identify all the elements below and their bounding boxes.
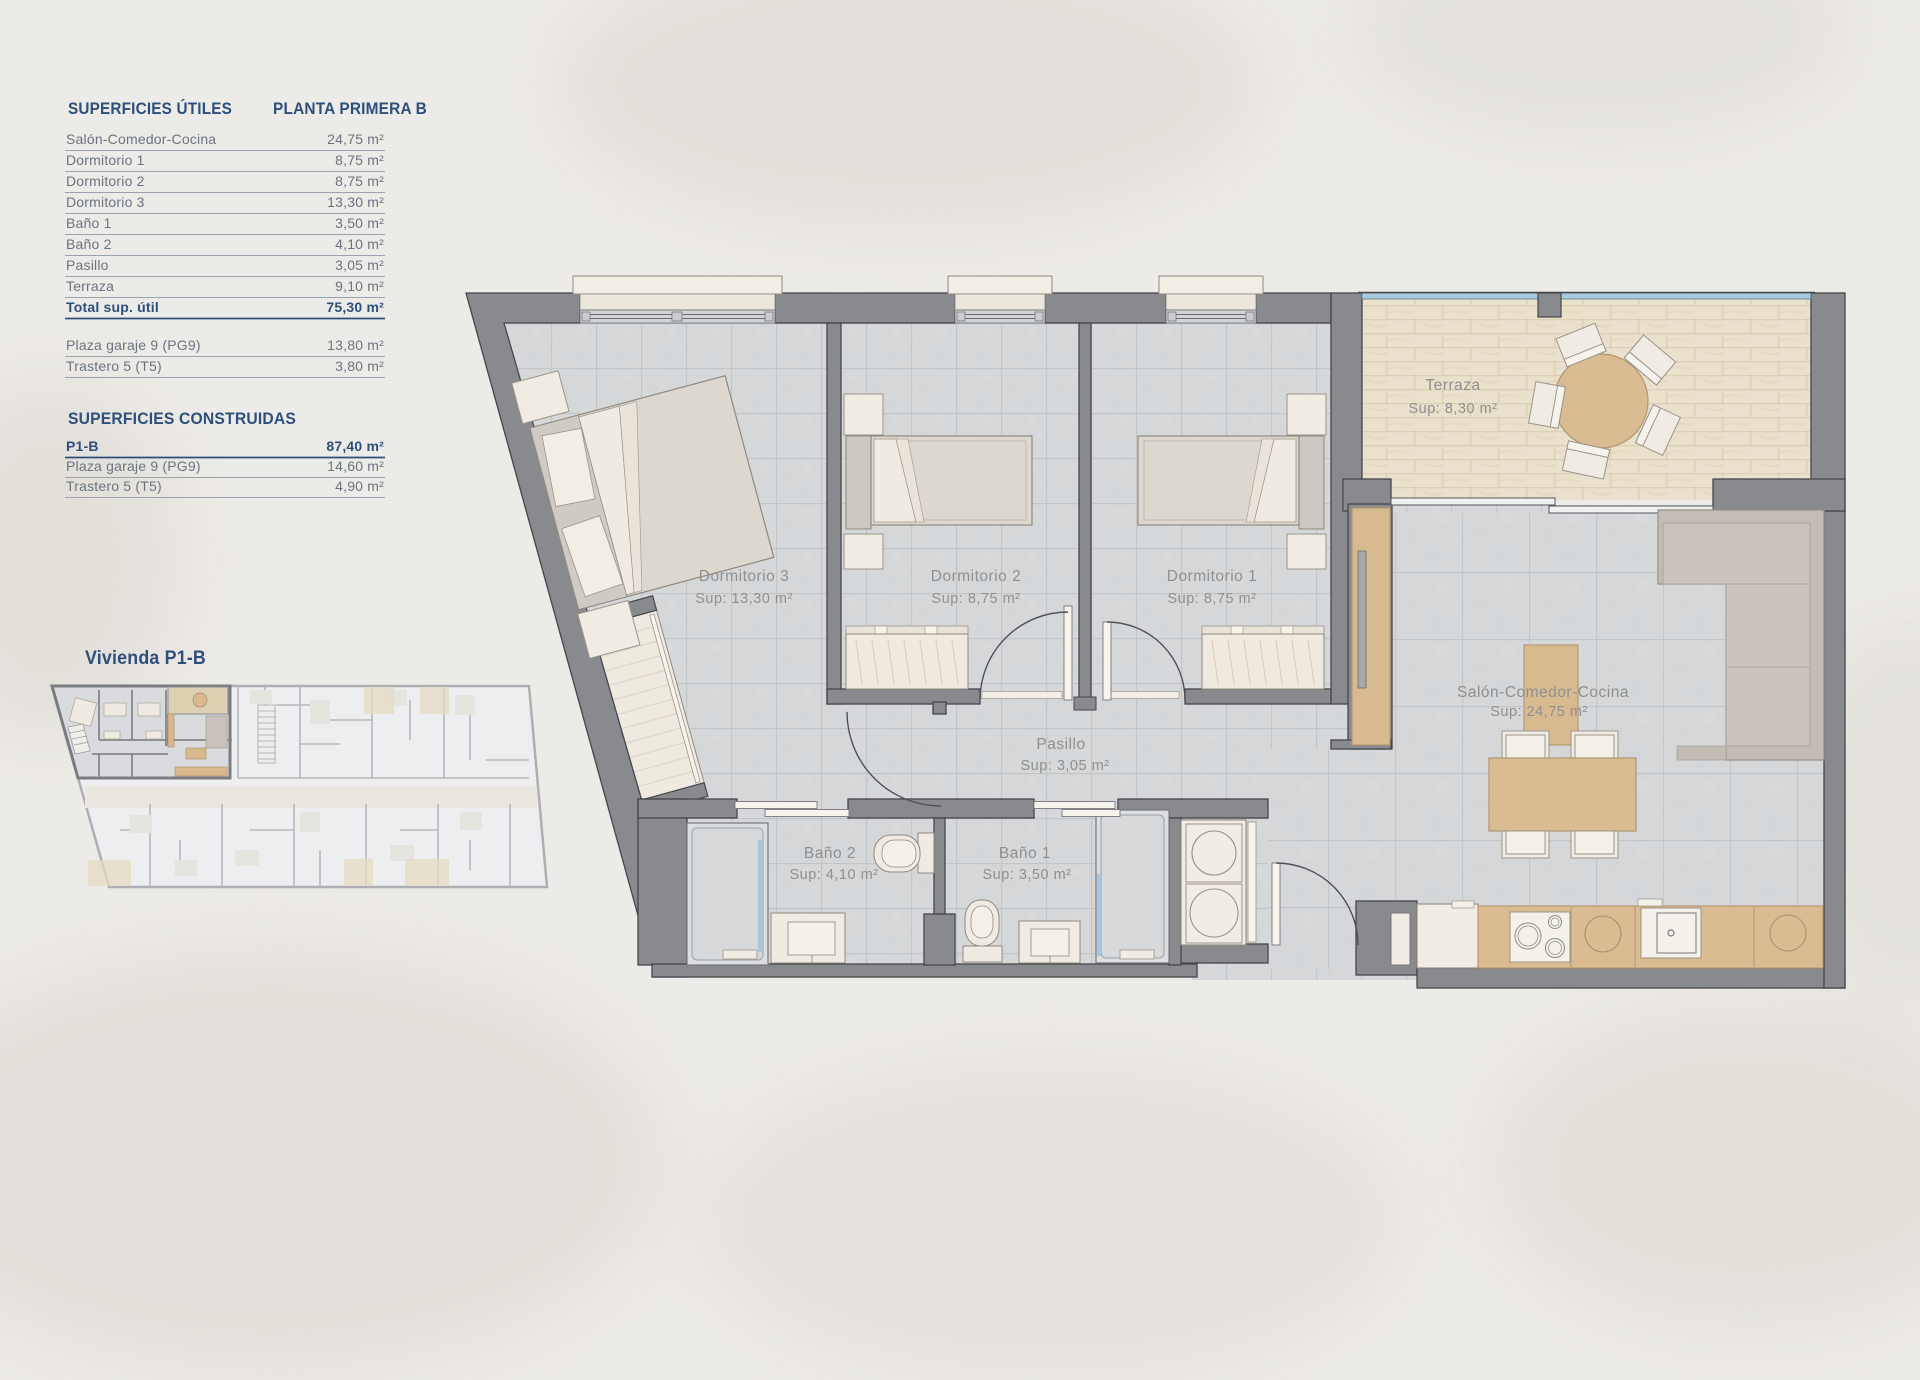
svg-text:Dormitorio 2: Dormitorio 2 [931, 568, 1021, 585]
svg-text:Dormitorio 3: Dormitorio 3 [66, 194, 145, 210]
svg-text:4,10 m²: 4,10 m² [335, 236, 384, 252]
svg-text:Baño 2: Baño 2 [66, 236, 112, 252]
svg-text:SUPERFICIES ÚTILES: SUPERFICIES ÚTILES [68, 99, 232, 118]
svg-text:Terraza: Terraza [66, 278, 114, 294]
svg-text:Pasillo: Pasillo [1036, 736, 1085, 753]
svg-text:13,80 m²: 13,80 m² [327, 337, 384, 353]
svg-text:14,60 m²: 14,60 m² [327, 458, 384, 474]
svg-text:3,80 m²: 3,80 m² [335, 358, 384, 374]
svg-text:Baño 1: Baño 1 [66, 215, 112, 231]
svg-text:Pasillo: Pasillo [66, 257, 109, 273]
svg-text:3,50 m²: 3,50 m² [335, 215, 384, 231]
svg-text:Dormitorio 2: Dormitorio 2 [66, 173, 145, 189]
svg-text:Trastero 5 (T5): Trastero 5 (T5) [66, 358, 162, 374]
svg-text:9,10 m²: 9,10 m² [335, 278, 384, 294]
svg-text:PLANTA PRIMERA B: PLANTA PRIMERA B [273, 99, 427, 118]
svg-text:SUPERFICIES CONSTRUIDAS: SUPERFICIES CONSTRUIDAS [68, 409, 296, 428]
svg-text:75,30 m²: 75,30 m² [326, 299, 384, 315]
svg-text:Salón-Comedor-Cocina: Salón-Comedor-Cocina [66, 131, 216, 147]
svg-text:Plaza garaje 9 (PG9): Plaza garaje 9 (PG9) [66, 337, 201, 353]
svg-text:Vivienda P1-B: Vivienda P1-B [85, 648, 206, 669]
svg-text:Sup: 8,30 m²: Sup: 8,30 m² [1408, 401, 1497, 417]
svg-text:Sup: 3,50 m²: Sup: 3,50 m² [982, 867, 1071, 883]
svg-text:13,30 m²: 13,30 m² [327, 194, 384, 210]
svg-text:Salón-Comedor-Cocina: Salón-Comedor-Cocina [1457, 684, 1629, 701]
svg-text:Sup: 24,75 m²: Sup: 24,75 m² [1490, 704, 1588, 720]
svg-text:Baño 2: Baño 2 [804, 845, 856, 862]
svg-text:87,40 m²: 87,40 m² [326, 438, 384, 454]
svg-text:8,75 m²: 8,75 m² [335, 152, 384, 168]
svg-text:Terraza: Terraza [1425, 377, 1480, 394]
svg-text:Sup: 13,30 m²: Sup: 13,30 m² [695, 591, 793, 607]
svg-text:Plaza garaje 9 (PG9): Plaza garaje 9 (PG9) [66, 458, 201, 474]
svg-text:24,75 m²: 24,75 m² [327, 131, 384, 147]
svg-text:3,05 m²: 3,05 m² [335, 257, 384, 273]
svg-text:Dormitorio 1: Dormitorio 1 [66, 152, 145, 168]
svg-text:P1-B: P1-B [66, 438, 99, 454]
svg-text:Total sup. útil: Total sup. útil [66, 299, 159, 315]
svg-text:Sup: 4,10 m²: Sup: 4,10 m² [789, 867, 878, 883]
svg-text:8,75 m²: 8,75 m² [335, 173, 384, 189]
svg-text:Dormitorio 1: Dormitorio 1 [1167, 568, 1257, 585]
svg-text:4,90 m²: 4,90 m² [335, 478, 384, 494]
svg-text:Trastero 5 (T5): Trastero 5 (T5) [66, 478, 162, 494]
svg-text:Sup: 3,05 m²: Sup: 3,05 m² [1020, 758, 1109, 774]
svg-text:Dormitorio 3: Dormitorio 3 [699, 568, 789, 585]
svg-text:Sup: 8,75 m²: Sup: 8,75 m² [931, 591, 1020, 607]
svg-text:Sup: 8,75 m²: Sup: 8,75 m² [1167, 591, 1256, 607]
svg-text:Baño 1: Baño 1 [999, 845, 1051, 862]
